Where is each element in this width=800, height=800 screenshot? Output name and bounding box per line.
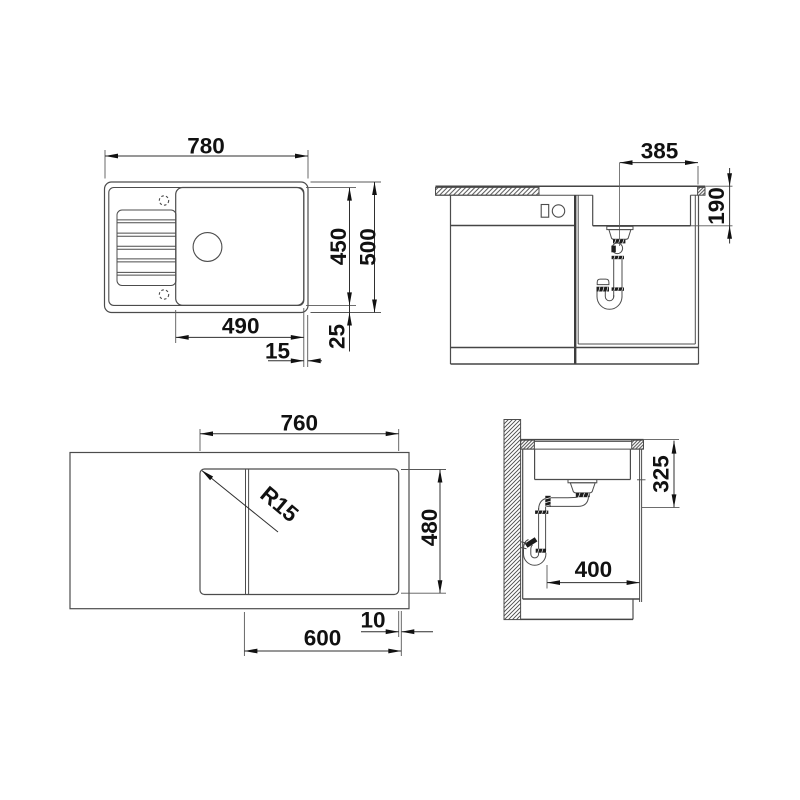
svg-text:385: 385 [641, 139, 679, 164]
svg-text:480: 480 [417, 509, 442, 547]
svg-text:190: 190 [704, 187, 729, 225]
svg-text:400: 400 [575, 557, 613, 582]
svg-text:500: 500 [356, 228, 381, 266]
svg-text:760: 760 [281, 411, 319, 436]
svg-text:15: 15 [265, 339, 290, 364]
svg-text:25: 25 [325, 324, 350, 349]
svg-text:600: 600 [304, 626, 342, 651]
svg-text:450: 450 [326, 228, 351, 266]
svg-text:780: 780 [187, 134, 225, 159]
svg-text:10: 10 [360, 608, 385, 633]
svg-text:490: 490 [222, 314, 260, 339]
svg-text:325: 325 [649, 455, 674, 493]
